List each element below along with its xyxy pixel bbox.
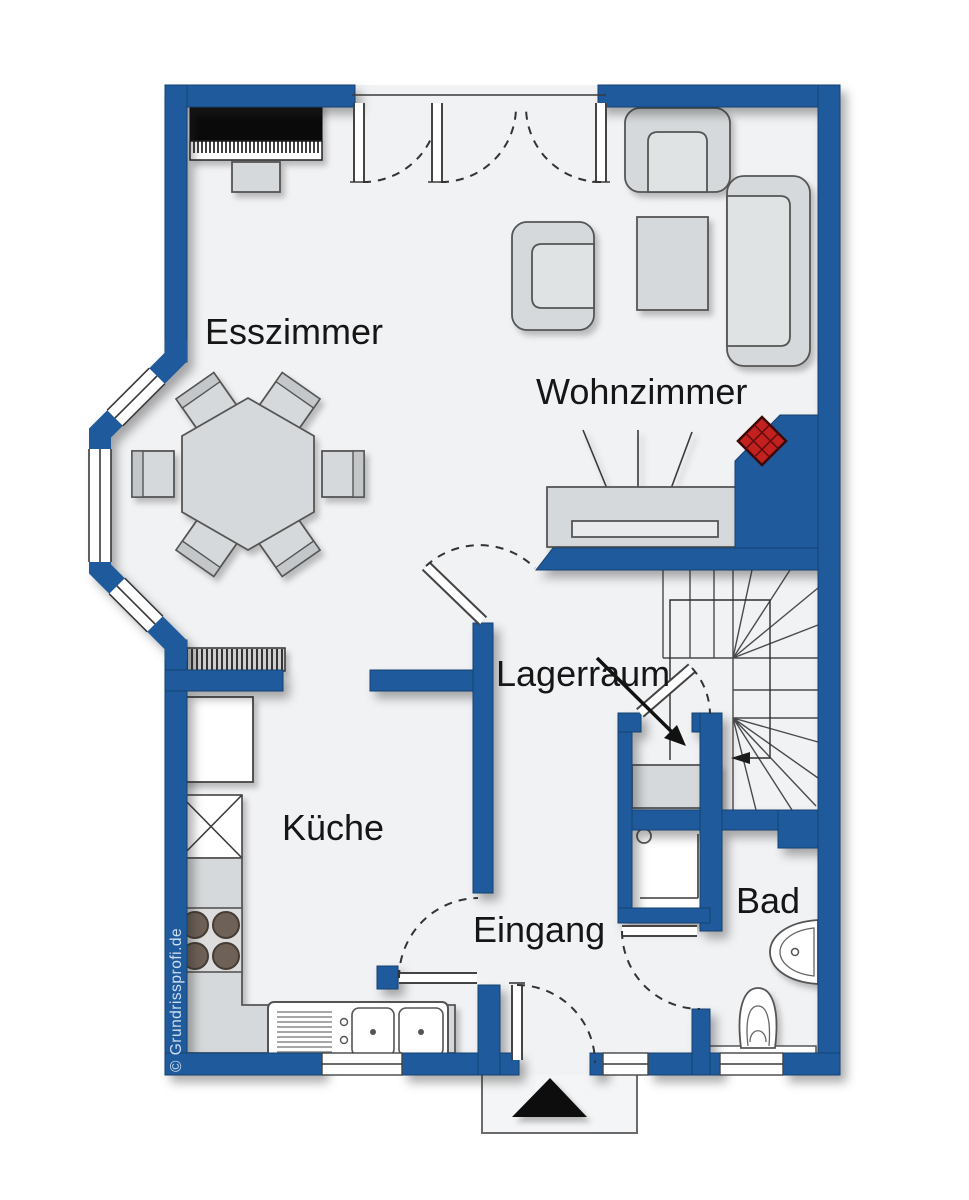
radiator-icon	[178, 648, 285, 671]
dining-chair-icon	[132, 451, 174, 497]
room-label-bad: Bad	[736, 880, 800, 921]
armchair-icon	[512, 222, 594, 330]
room-label-eingang: Eingang	[473, 909, 605, 950]
cooktop-icon	[178, 908, 242, 972]
floor-plan-image: Esszimmer Wohnzimmer Lagerraum Küche Ein…	[0, 0, 969, 1200]
fridge-icon	[183, 697, 253, 782]
room-label-lagerraum: Lagerraum	[496, 653, 670, 694]
floor-plan: Esszimmer Wohnzimmer Lagerraum Küche Ein…	[0, 0, 969, 1200]
window-icon	[322, 1053, 402, 1075]
dining-chair-icon	[322, 451, 364, 497]
tv-wall	[536, 548, 818, 570]
shower-icon	[630, 822, 708, 910]
window-icon	[603, 1053, 648, 1075]
room-label-kueche: Küche	[282, 807, 384, 848]
room-label-wohnzimmer: Wohnzimmer	[536, 371, 747, 412]
appliance-crossed-icon	[180, 795, 242, 858]
sofa-icon	[727, 176, 810, 366]
coffee-table-icon	[637, 217, 708, 310]
window-icon	[720, 1053, 783, 1075]
watermark: © Grundrissprofi.de	[168, 928, 185, 1072]
armchair-icon	[625, 108, 730, 192]
room-label-esszimmer: Esszimmer	[205, 311, 383, 352]
